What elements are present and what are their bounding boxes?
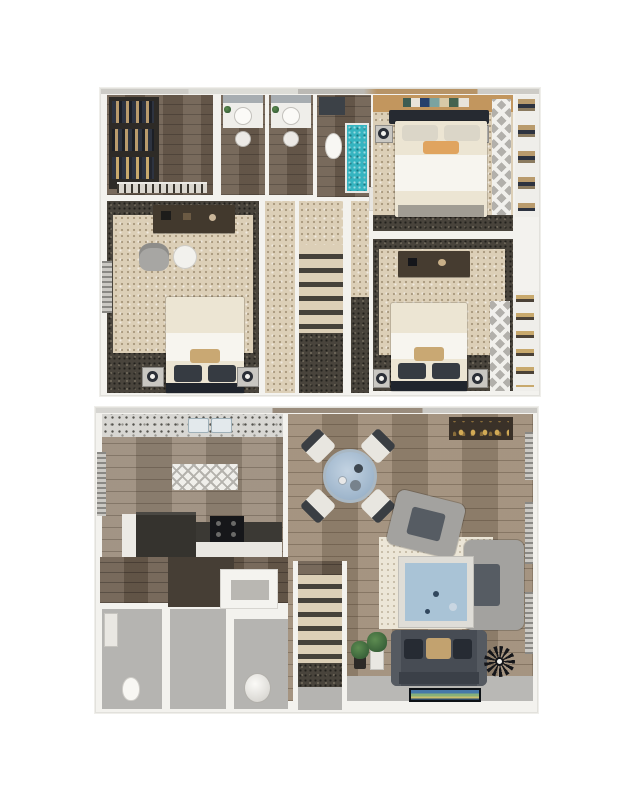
closet-top-right bbox=[515, 95, 539, 217]
potted-plant bbox=[351, 641, 369, 671]
page-canvas: { "image": { "kind": "3D dollhouse two-l… bbox=[0, 0, 640, 802]
headboard bbox=[166, 383, 244, 393]
nightstand bbox=[237, 367, 259, 387]
nightstand bbox=[468, 369, 488, 388]
hanging-clothes bbox=[112, 101, 154, 123]
bath-counter bbox=[319, 97, 345, 115]
plant-icon bbox=[224, 106, 231, 113]
utility-closet bbox=[234, 619, 288, 709]
chevron-rug bbox=[172, 464, 238, 490]
hallway-carpet bbox=[265, 201, 295, 393]
toilet bbox=[325, 133, 342, 159]
kitchen-sink bbox=[211, 418, 232, 433]
desk bbox=[398, 251, 470, 277]
pillow bbox=[444, 125, 480, 141]
bedroom-master bbox=[373, 95, 513, 231]
coffee-table bbox=[399, 557, 473, 627]
bed bbox=[395, 121, 487, 217]
louver-closet-door bbox=[492, 99, 511, 215]
storage-console bbox=[220, 569, 278, 609]
sofa-seat bbox=[399, 672, 479, 684]
burner bbox=[231, 532, 236, 537]
side-table bbox=[173, 245, 197, 269]
console-shelf bbox=[231, 580, 269, 600]
bottles bbox=[453, 421, 509, 436]
vessel-sink bbox=[282, 107, 300, 125]
sofa bbox=[391, 630, 487, 686]
tv bbox=[409, 688, 481, 702]
window-blinds bbox=[525, 432, 533, 480]
closet-shelves bbox=[516, 295, 534, 387]
clock-face bbox=[495, 657, 504, 666]
stair-treads bbox=[299, 245, 343, 333]
stair-top-floor bbox=[298, 561, 342, 575]
window-blinds bbox=[525, 502, 533, 564]
accent-pillow bbox=[423, 141, 459, 154]
plant-icon bbox=[351, 641, 369, 659]
burner bbox=[216, 521, 221, 526]
table-lamp bbox=[472, 373, 483, 384]
vessel-sink bbox=[234, 107, 252, 125]
wall-art bbox=[403, 98, 469, 107]
lower-floor-panel bbox=[95, 407, 538, 713]
desk-item bbox=[161, 211, 171, 220]
carpet-border bbox=[373, 215, 513, 231]
vanity-room-right bbox=[269, 95, 313, 195]
bedroom-left bbox=[107, 201, 259, 393]
hanging-clothes bbox=[112, 157, 154, 179]
stove bbox=[210, 516, 244, 542]
table-lamp bbox=[376, 373, 387, 384]
bed-bench bbox=[398, 205, 484, 217]
pillow bbox=[398, 363, 426, 379]
staircase-down bbox=[295, 201, 347, 393]
bed bbox=[166, 297, 244, 393]
stairwell bbox=[299, 333, 343, 393]
kitchen-sink bbox=[188, 418, 209, 433]
dining-table bbox=[323, 449, 377, 503]
desk-item bbox=[408, 258, 417, 266]
vanity-room-left bbox=[221, 95, 265, 195]
bed bbox=[391, 303, 467, 391]
table-lamp bbox=[378, 128, 389, 139]
wall-cap bbox=[96, 408, 537, 413]
plant-icon bbox=[272, 106, 279, 113]
hanging-clothes bbox=[112, 129, 154, 151]
place-setting bbox=[354, 464, 363, 473]
clothes-shelves bbox=[518, 99, 535, 211]
wall-cap bbox=[101, 89, 539, 94]
mirror bbox=[271, 95, 311, 104]
pillow bbox=[208, 365, 236, 382]
kitchen bbox=[102, 414, 283, 564]
vanity bbox=[104, 613, 118, 647]
nightstand bbox=[142, 367, 164, 387]
water-heater bbox=[244, 673, 271, 703]
throw-pillow bbox=[426, 638, 451, 659]
chair-cushion bbox=[406, 506, 446, 541]
vessel-sink bbox=[283, 131, 299, 147]
nightstand bbox=[373, 369, 390, 388]
table-decor bbox=[425, 609, 430, 614]
utility-zone bbox=[100, 557, 288, 710]
desk-chair bbox=[139, 243, 169, 271]
throw-pillow bbox=[404, 639, 423, 659]
console-table bbox=[449, 417, 513, 440]
plant-stand bbox=[370, 650, 384, 670]
powder-room bbox=[102, 609, 162, 709]
table-lamp bbox=[242, 371, 253, 382]
centerpiece bbox=[350, 480, 361, 491]
armchair bbox=[464, 540, 524, 630]
bedroom-right bbox=[373, 239, 513, 391]
accent-pillow bbox=[190, 349, 220, 363]
island-counter bbox=[136, 512, 196, 560]
shoe-shelf bbox=[117, 182, 207, 193]
table-lamp bbox=[147, 371, 158, 382]
pillow bbox=[174, 365, 202, 382]
closet-bottom-right bbox=[513, 291, 539, 391]
pillow bbox=[402, 125, 438, 141]
stair-treads bbox=[298, 575, 342, 663]
burner bbox=[231, 521, 236, 526]
wall-clock bbox=[484, 646, 515, 677]
upper-floor-panel bbox=[100, 88, 540, 396]
place-setting bbox=[338, 476, 347, 485]
window-blinds bbox=[102, 261, 112, 313]
nightstand bbox=[375, 125, 393, 143]
floor-plant bbox=[367, 632, 387, 672]
pillow bbox=[432, 363, 460, 379]
plant-icon bbox=[367, 632, 387, 652]
staircase-up bbox=[293, 561, 347, 710]
desk-item bbox=[438, 259, 446, 266]
chair-cushion bbox=[472, 564, 500, 606]
tv-screen bbox=[411, 690, 479, 700]
hallway-carpet bbox=[351, 201, 369, 393]
bed-sheet bbox=[395, 155, 487, 191]
window-blinds bbox=[525, 592, 533, 654]
accent-pillow bbox=[414, 347, 444, 361]
shower bbox=[345, 123, 369, 193]
vessel-sink bbox=[235, 131, 251, 147]
stair-landing bbox=[299, 201, 343, 245]
desk-item bbox=[209, 214, 216, 221]
hall-room bbox=[170, 609, 226, 709]
hallway-carpet bbox=[351, 201, 369, 297]
louver-closet-door bbox=[490, 301, 510, 391]
desk-item bbox=[183, 213, 191, 220]
throw-pillow bbox=[453, 639, 472, 659]
mirror bbox=[223, 95, 263, 104]
headboard bbox=[391, 381, 467, 391]
window-blinds bbox=[97, 452, 106, 516]
toilet bbox=[122, 677, 140, 701]
desk bbox=[153, 205, 235, 233]
walk-in-closet bbox=[107, 95, 213, 195]
bathroom bbox=[317, 95, 371, 197]
burner bbox=[216, 532, 221, 537]
table-decor bbox=[433, 591, 439, 597]
table-decor bbox=[449, 603, 457, 611]
stair-landing bbox=[298, 663, 342, 687]
